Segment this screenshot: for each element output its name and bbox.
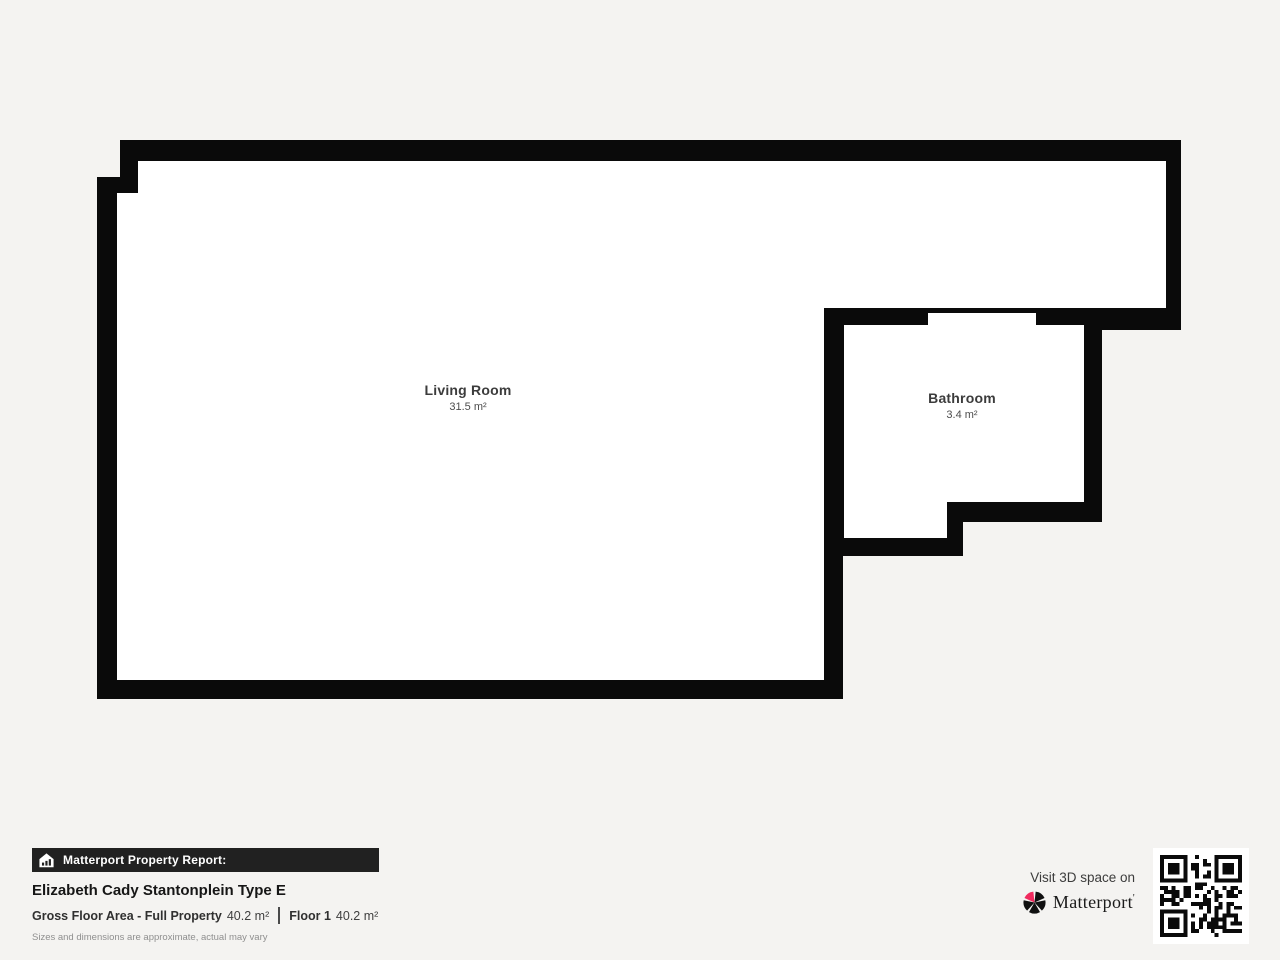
floor1-value: 40.2 m² <box>336 909 378 923</box>
floorplan-drawing <box>0 0 1280 960</box>
property-name: Elizabeth Cady Stantonplein Type E <box>32 882 379 899</box>
matterport-wordmark: Matterport' <box>1053 892 1135 913</box>
gross-area-value: 40.2 m² <box>227 909 269 923</box>
qr-code <box>1153 848 1249 944</box>
trademark-tick: ' <box>1133 893 1135 904</box>
floor1-label: Floor 1 <box>289 909 331 923</box>
property-report-block: Matterport Property Report: Elizabeth Ca… <box>32 848 379 943</box>
visit-3d-text: Visit 3D space on <box>935 870 1135 885</box>
floor-plan-report-page: Living Room 31.5 m² Bathroom 3.4 m² Matt… <box>0 0 1280 960</box>
gross-area-label: Gross Floor Area - Full Property <box>32 909 222 923</box>
report-banner: Matterport Property Report: <box>32 848 379 872</box>
matterport-logo: Matterport' <box>935 891 1135 914</box>
area-summary: Gross Floor Area - Full Property 40.2 m²… <box>32 907 379 924</box>
report-banner-label: Matterport Property Report: <box>63 853 226 867</box>
house-chart-icon <box>38 852 55 869</box>
size-disclaimer: Sizes and dimensions are approximate, ac… <box>32 932 379 943</box>
visit-3d-block: Visit 3D space on Matterport' <box>935 870 1135 914</box>
matterport-pinwheel-icon <box>1023 891 1046 914</box>
floor-slab <box>97 140 1181 699</box>
separator <box>278 907 280 924</box>
window-opening <box>928 313 1036 325</box>
